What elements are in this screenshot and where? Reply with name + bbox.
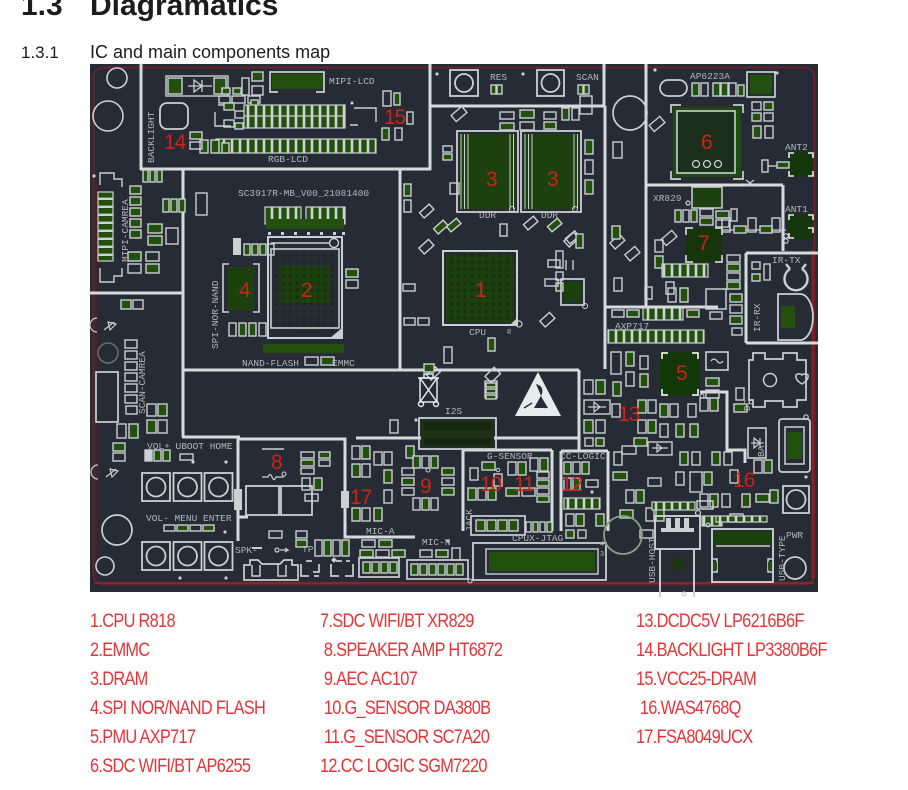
svg-text:SPI-NOR-NAND: SPI-NOR-NAND <box>210 280 221 349</box>
svg-text:VOL- MENU ENTER: VOL- MENU ENTER <box>146 513 232 524</box>
svg-text:IR-TX: IR-TX <box>772 255 801 266</box>
svg-text:CC-LOGIC: CC-LOGIC <box>560 451 606 462</box>
svg-text:AP6223A: AP6223A <box>690 71 730 82</box>
svg-text:JACK: JACK <box>464 509 475 532</box>
svg-text:VOL+ UBOOT HOME: VOL+ UBOOT HOME <box>147 441 233 452</box>
svg-text:PWR: PWR <box>786 530 803 541</box>
svg-text:1: 1 <box>475 279 486 302</box>
svg-text:3: 3 <box>486 168 497 191</box>
svg-text:16: 16 <box>733 469 755 492</box>
svg-text:CPU: CPU <box>469 327 486 338</box>
svg-text:15: 15 <box>384 106 406 129</box>
svg-text:G-SENSOR: G-SENSOR <box>487 451 533 462</box>
svg-text:12: 12 <box>561 473 583 496</box>
svg-text:11: 11 <box>514 473 534 496</box>
svg-text:IR-RX: IR-RX <box>752 303 763 332</box>
svg-text:DDR: DDR <box>479 210 496 221</box>
svg-text:NAND-FLASH: NAND-FLASH <box>242 358 299 369</box>
svg-text:RES: RES <box>490 72 507 83</box>
svg-text:SCAN: SCAN <box>576 72 599 83</box>
svg-text:SCAN-CAMREA: SCAN-CAMREA <box>137 351 148 414</box>
svg-text:USB-TYPE: USB-TYPE <box>777 535 788 581</box>
svg-text:DDR: DDR <box>541 210 558 221</box>
svg-text:EMMC: EMMC <box>332 358 355 369</box>
svg-text:6: 6 <box>701 131 712 154</box>
svg-text:USB-HOST: USB-HOST <box>647 537 658 583</box>
svg-text:CPUX-JTAG: CPUX-JTAG <box>512 533 564 544</box>
svg-text:14: 14 <box>164 131 187 154</box>
svg-text:4: 4 <box>600 541 604 549</box>
svg-text:I2S: I2S <box>445 406 462 417</box>
svg-text:SC3917R-MB_V00_21081400: SC3917R-MB_V00_21081400 <box>238 188 369 199</box>
svg-text:17: 17 <box>350 486 372 509</box>
svg-text:ANT2: ANT2 <box>785 142 808 153</box>
svg-text:3: 3 <box>547 168 558 191</box>
svg-text:9: 9 <box>420 475 431 498</box>
svg-text:2: 2 <box>301 279 312 302</box>
svg-text:BAT: BAT <box>756 440 767 457</box>
svg-text:4: 4 <box>239 279 251 302</box>
svg-text:MIC-N: MIC-N <box>422 537 451 548</box>
svg-text:AXP717: AXP717 <box>615 321 649 332</box>
svg-text:TP: TP <box>302 544 314 555</box>
svg-text:7: 7 <box>698 232 709 255</box>
svg-text:8: 8 <box>271 451 282 474</box>
svg-text:5: 5 <box>676 362 687 385</box>
svg-text:MIPI-LCD: MIPI-LCD <box>329 76 375 87</box>
svg-text:DC: DC <box>742 399 753 411</box>
svg-text:10: 10 <box>480 473 502 496</box>
svg-text:SPK-: SPK- <box>235 545 258 556</box>
svg-text:ANT1: ANT1 <box>785 204 808 215</box>
svg-text:MIC-A: MIC-A <box>366 526 395 537</box>
svg-text:MIPI-CAMREA: MIPI-CAMREA <box>120 199 131 262</box>
svg-text:13: 13 <box>618 403 640 426</box>
svg-text:3: 3 <box>600 551 604 559</box>
svg-text:XR829: XR829 <box>653 193 682 204</box>
svg-text:RGB-LCD: RGB-LCD <box>268 154 308 165</box>
svg-text:BACKLIGHT: BACKLIGHT <box>146 111 157 163</box>
